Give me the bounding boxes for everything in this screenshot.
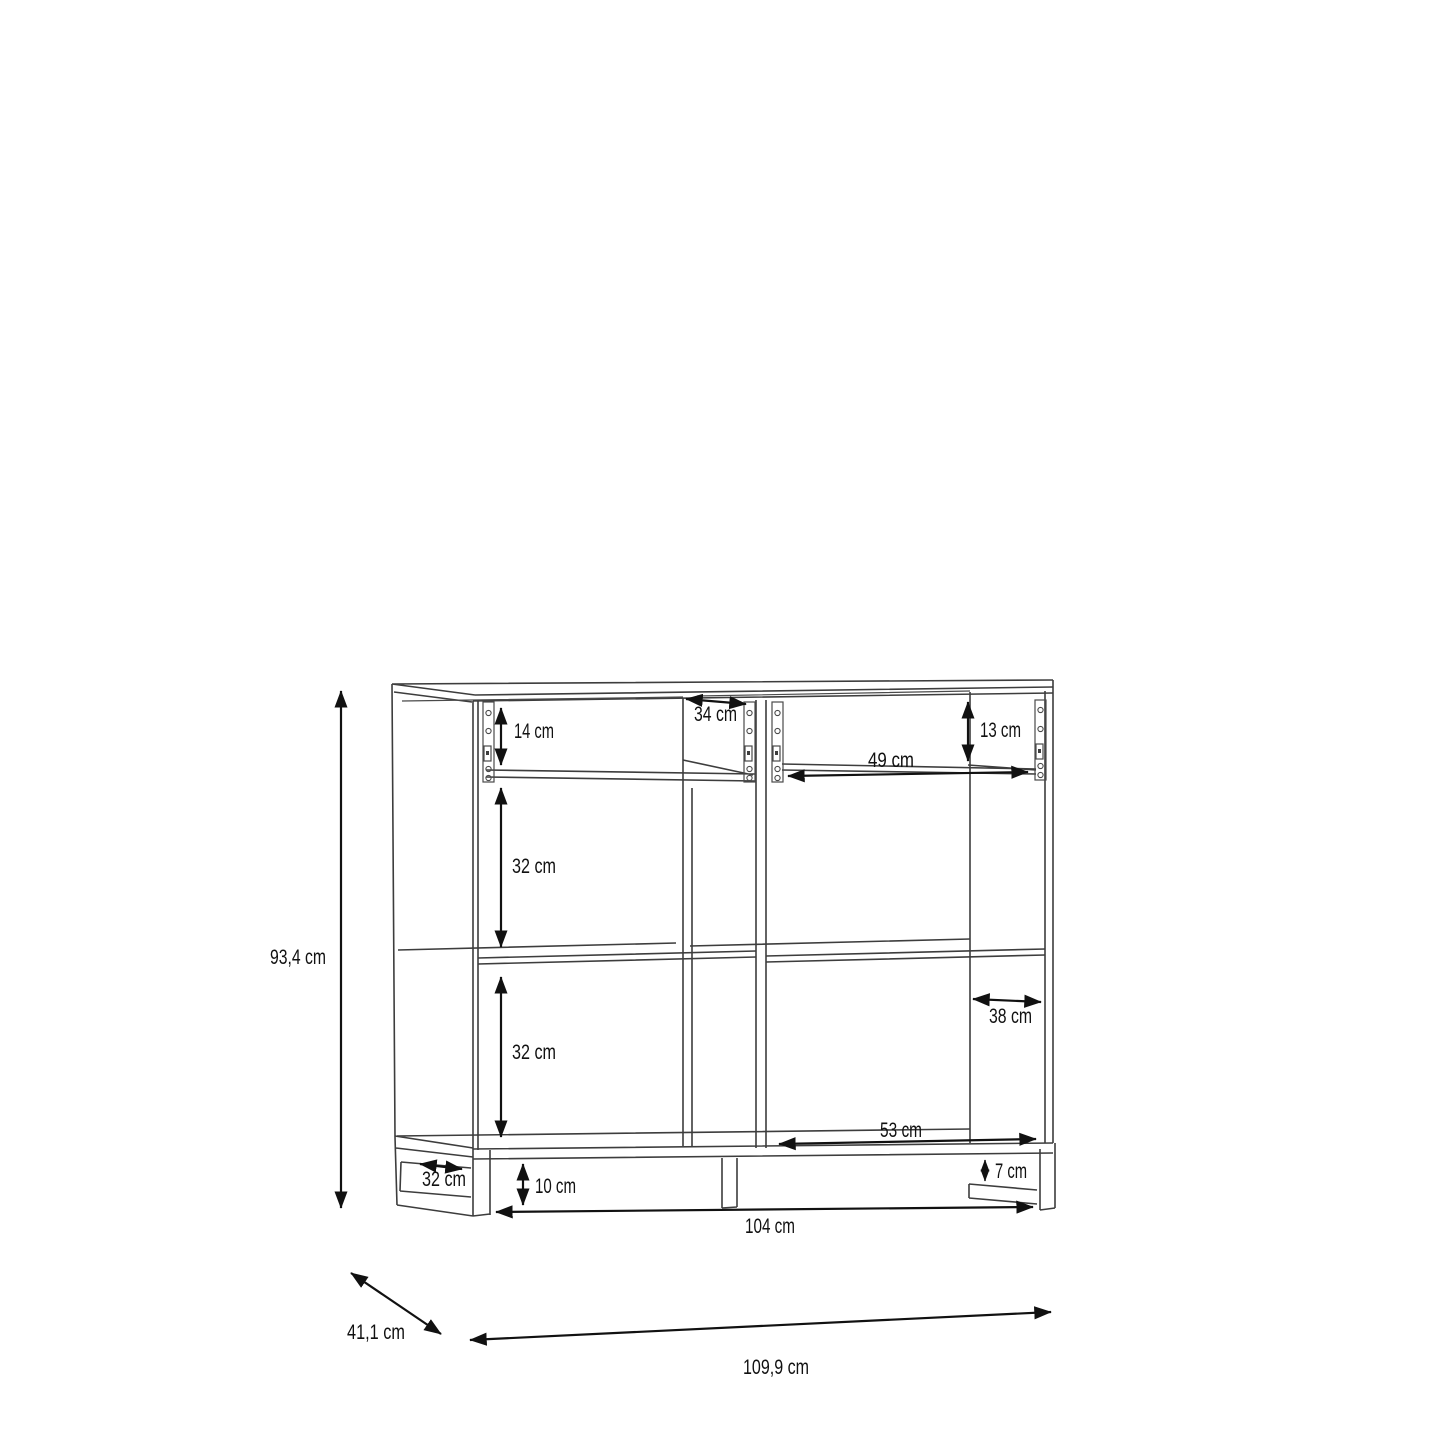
dim-right-drawer-width: 49 cm <box>788 749 1028 776</box>
middle-leg <box>722 1158 737 1208</box>
dim-left-leg-depth: 32 cm <box>420 1164 466 1191</box>
shelves <box>398 939 1045 964</box>
drawer-rails <box>483 700 1046 782</box>
cabinet-dimension-drawing: 14 cm 34 cm 13 cm 49 cm 32 cm 32 cm 38 c… <box>0 0 1445 1445</box>
dimension-annotations: 14 cm 34 cm 13 cm 49 cm 32 cm 32 cm 38 c… <box>270 691 1051 1379</box>
diagram-canvas: 14 cm 34 cm 13 cm 49 cm 32 cm 32 cm 38 c… <box>0 0 1445 1445</box>
dim-overall-depth: 41,1 cm <box>347 1273 441 1344</box>
right-shelf <box>690 939 1045 962</box>
dim-overall-width: 109,9 cm <box>470 1312 1051 1379</box>
dim-label-right-section-depth: 38 cm <box>989 1005 1032 1028</box>
dim-base-width: 104 cm <box>496 1207 1033 1238</box>
dim-right-section-depth: 38 cm <box>973 999 1041 1028</box>
dim-left-lower-section-height: 32 cm <box>501 977 556 1137</box>
drawer-rail-divider-right <box>772 702 783 782</box>
dim-label-overall-width: 109,9 cm <box>743 1356 809 1379</box>
dim-label-right-drawer-height: 13 cm <box>980 719 1021 742</box>
dim-label-right-drawer-width: 49 cm <box>868 749 914 772</box>
dim-base-height: 10 cm <box>523 1164 576 1205</box>
dim-label-overall-depth: 41,1 cm <box>347 1321 405 1344</box>
dim-label-base-width: 104 cm <box>745 1215 795 1238</box>
dim-label-left-upper-section-height: 32 cm <box>512 855 556 878</box>
dim-label-left-lower-section-height: 32 cm <box>512 1041 556 1064</box>
center-divider <box>683 698 766 1148</box>
dim-label-left-top-depth: 34 cm <box>694 703 737 726</box>
dim-right-drawer-height: 13 cm <box>968 702 1021 761</box>
left-drawer-bottom <box>486 760 755 781</box>
dim-overall-height: 93,4 cm <box>270 691 341 1208</box>
dim-label-left-drawer-height: 14 cm <box>514 720 554 743</box>
right-leg-bar <box>969 1184 1037 1204</box>
dim-label-right-leg-height: 7 cm <box>995 1160 1027 1183</box>
dim-label-right-bottom-width: 53 cm <box>880 1119 922 1142</box>
drawer-rail-divider-left <box>744 702 755 782</box>
dim-label-left-leg-depth: 32 cm <box>422 1168 466 1191</box>
front-left-leg <box>473 1150 490 1216</box>
dim-label-overall-height: 93,4 cm <box>270 946 326 969</box>
dim-label-base-height: 10 cm <box>535 1175 576 1198</box>
dim-left-drawer-height: 14 cm <box>501 708 554 765</box>
dim-left-top-depth: 34 cm <box>686 699 746 726</box>
dim-left-upper-section-height: 32 cm <box>501 788 556 947</box>
bottom-panel <box>395 1129 1053 1159</box>
dim-right-leg-height: 7 cm <box>985 1160 1027 1183</box>
